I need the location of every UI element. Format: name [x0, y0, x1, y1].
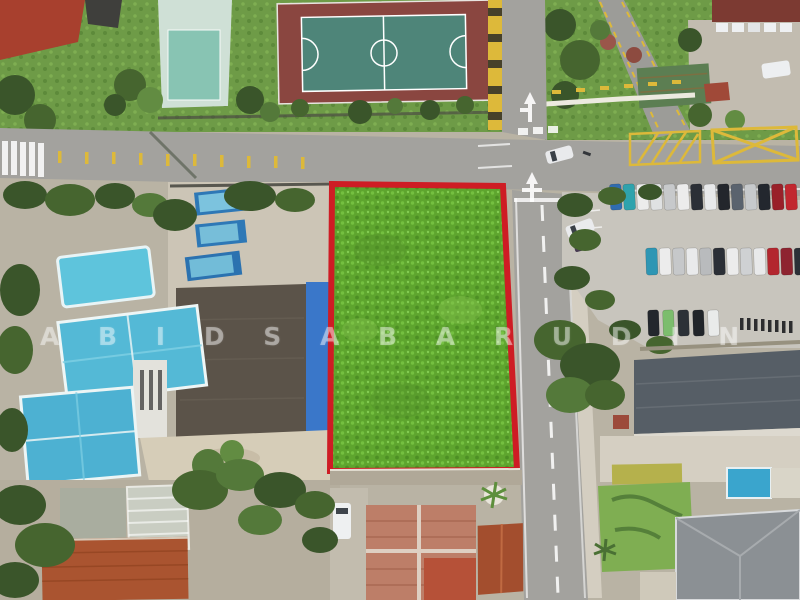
vegetation-patch — [342, 318, 378, 342]
old-court-inner — [168, 30, 220, 100]
parked-car — [704, 184, 717, 211]
parked-car — [717, 184, 730, 211]
shrub — [688, 103, 712, 127]
parked-car — [646, 248, 658, 275]
tree-canopy — [560, 40, 600, 80]
parked-car — [678, 310, 690, 336]
green-shed-roof — [637, 63, 712, 108]
yellow-green-pond — [612, 463, 682, 484]
tree-canopy — [590, 20, 610, 40]
parked-car — [708, 310, 720, 336]
dark-annex-roof — [85, 0, 122, 28]
cars-under-shelter — [716, 23, 792, 32]
futsal-court — [277, 0, 491, 104]
window-slits — [140, 370, 162, 410]
parked-car — [700, 248, 712, 275]
hazard-strip — [488, 0, 502, 130]
shrub — [725, 110, 745, 130]
parked-car — [764, 23, 776, 32]
parked-car — [663, 184, 676, 211]
tree-canopy — [387, 98, 403, 114]
parked-car — [781, 248, 793, 275]
swimming-pool-west — [57, 246, 154, 307]
parked-car — [731, 184, 744, 211]
parked-car — [744, 184, 757, 211]
parked-car — [771, 184, 784, 211]
parked-car — [693, 310, 705, 336]
tree-canopy — [291, 99, 309, 117]
parked-car — [785, 184, 798, 211]
parked-car — [659, 248, 671, 275]
small-red-roof — [704, 82, 730, 102]
small-red-structure — [613, 415, 629, 429]
stop-line — [514, 198, 564, 202]
tree-canopy — [104, 94, 126, 116]
parked-car — [690, 184, 703, 211]
paved-patio — [60, 488, 126, 540]
vegetation-patch — [438, 296, 482, 324]
tree-canopy — [678, 28, 702, 52]
tree-canopy — [348, 100, 372, 124]
old-court — [158, 0, 232, 108]
parked-car — [663, 310, 675, 336]
parked-car — [767, 248, 779, 275]
tree-canopy — [420, 100, 440, 120]
parked-car — [686, 248, 698, 275]
parked-car — [740, 248, 752, 275]
maroon-shelter-roof — [712, 0, 800, 22]
parked-car — [677, 184, 690, 211]
vegetation-patch — [354, 234, 406, 266]
land-plot — [330, 184, 517, 471]
parked-car — [648, 310, 660, 336]
tree-canopy — [236, 86, 264, 114]
parked-car — [713, 248, 725, 275]
white-van-south — [333, 503, 351, 539]
green-roof-shed — [637, 63, 712, 108]
parked-car — [716, 23, 728, 32]
pool-deck — [771, 468, 800, 498]
parked-car — [754, 248, 766, 275]
plot-south-wall — [330, 470, 522, 485]
bright-roof-section — [424, 558, 476, 600]
car-park — [554, 184, 800, 354]
car-row-south — [648, 310, 720, 336]
wall-coping — [330, 469, 520, 470]
gray-hip-roof-house — [676, 510, 800, 600]
parked-car — [758, 184, 771, 211]
vegetation-patch — [370, 382, 430, 418]
salmon-roof-house — [366, 505, 476, 600]
banana-tree — [137, 87, 163, 113]
car-row-middle — [646, 248, 800, 275]
south-houses — [0, 459, 527, 600]
tree-canopy — [544, 9, 576, 41]
aerial-photo: A B I D S A B A R U D I N — [0, 0, 800, 600]
ridge-cap — [417, 505, 421, 600]
tree-canopy — [456, 96, 474, 114]
aerial-photo-canvas — [0, 0, 800, 600]
parked-car — [794, 248, 800, 275]
side-road-north — [500, 0, 547, 140]
parked-car — [727, 248, 739, 275]
parked-car — [673, 248, 685, 275]
swimming-pool-east — [727, 468, 771, 498]
house-yard — [640, 572, 676, 600]
parked-car — [748, 23, 760, 32]
parked-car — [780, 23, 792, 32]
tree-canopy — [260, 102, 280, 122]
west-block — [0, 181, 332, 486]
orange-hip-roof — [474, 521, 527, 597]
blue-roof-house-b — [20, 387, 139, 484]
southeast-block — [594, 463, 800, 600]
parked-car — [732, 23, 744, 32]
palm-tree-south — [481, 482, 507, 508]
gazebo-roof — [626, 47, 642, 63]
warehouse-roof — [634, 350, 800, 434]
